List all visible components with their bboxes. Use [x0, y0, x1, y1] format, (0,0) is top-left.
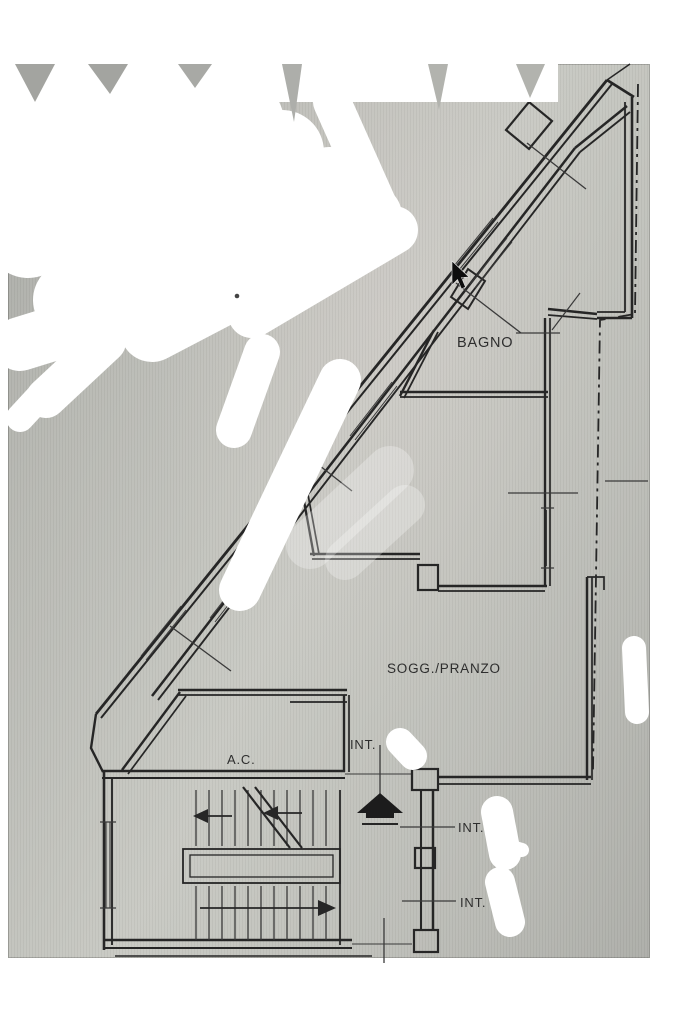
- label-ac: A.C.: [227, 752, 255, 767]
- label-int-2: INT.: [458, 820, 484, 835]
- staircase: [183, 787, 340, 945]
- floor-plan-drawing: BAGNO SOGG./PRANZO A.C. INT. INT. INT.: [0, 0, 683, 1024]
- label-bagno: BAGNO: [457, 335, 513, 351]
- label-int-3: INT.: [460, 895, 486, 910]
- screenshot-root: { "photo": { "background": "#b9bab4", "l…: [0, 0, 683, 1024]
- page-background: BAGNO SOGG./PRANZO A.C. INT. INT. INT.: [0, 0, 683, 1024]
- label-sogg-pranzo: SOGG./PRANZO: [387, 661, 501, 676]
- stair-direction-arrows: [193, 806, 336, 916]
- photo-speck: [235, 294, 240, 299]
- label-int-1: INT.: [350, 737, 376, 752]
- entrance-arrow-symbol: [357, 793, 403, 824]
